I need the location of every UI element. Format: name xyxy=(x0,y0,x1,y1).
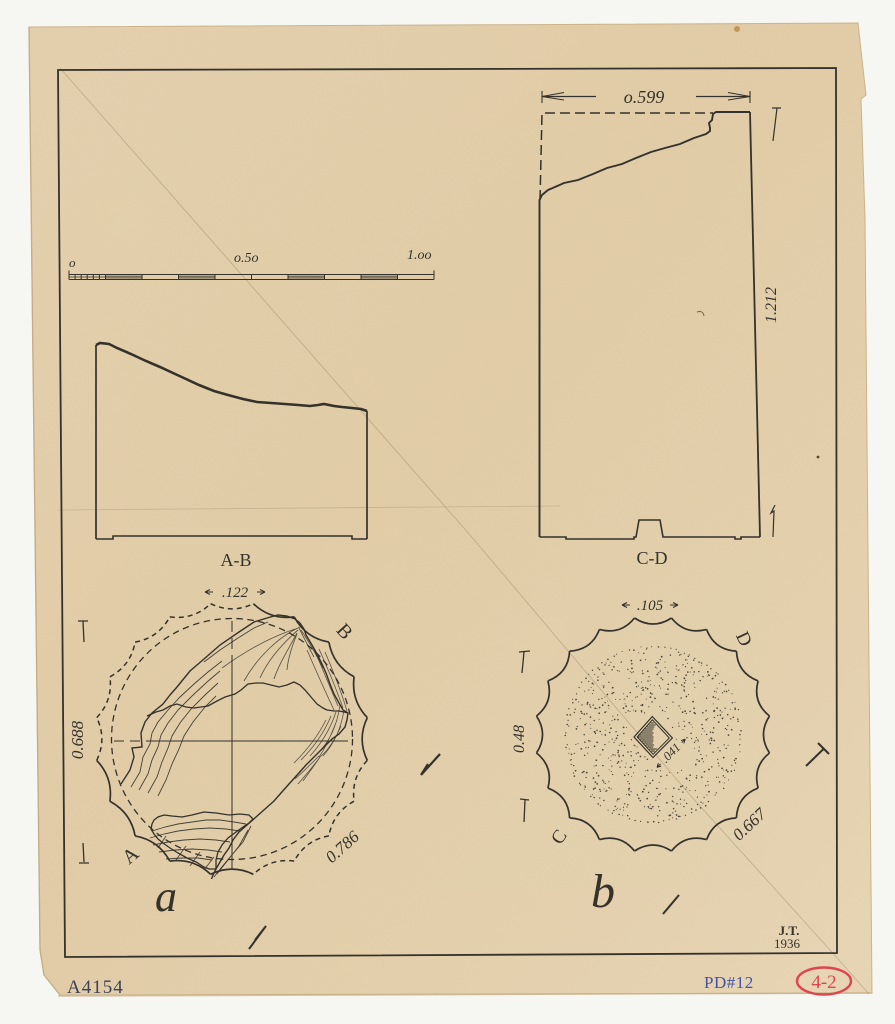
svg-text:a: a xyxy=(155,872,177,921)
svg-text:1.212: 1.212 xyxy=(763,287,780,323)
svg-text:1936: 1936 xyxy=(774,936,801,951)
svg-text:0.48: 0.48 xyxy=(511,725,528,753)
svg-text:.105: .105 xyxy=(637,598,664,614)
svg-text:o.599: o.599 xyxy=(624,87,665,107)
svg-text:1.oo: 1.oo xyxy=(407,248,432,263)
svg-text:0.688: 0.688 xyxy=(68,720,87,759)
svg-text:C-D: C-D xyxy=(637,548,668,568)
svg-text:A-B: A-B xyxy=(221,550,252,570)
svg-text:A4154: A4154 xyxy=(67,977,124,998)
svg-text:4-2: 4-2 xyxy=(811,972,836,993)
svg-text:PD#12: PD#12 xyxy=(704,973,754,992)
svg-text:b: b xyxy=(591,865,615,918)
svg-text:.122: .122 xyxy=(222,585,249,601)
svg-text:o.5o: o.5o xyxy=(234,251,259,266)
svg-text:o: o xyxy=(69,255,76,270)
